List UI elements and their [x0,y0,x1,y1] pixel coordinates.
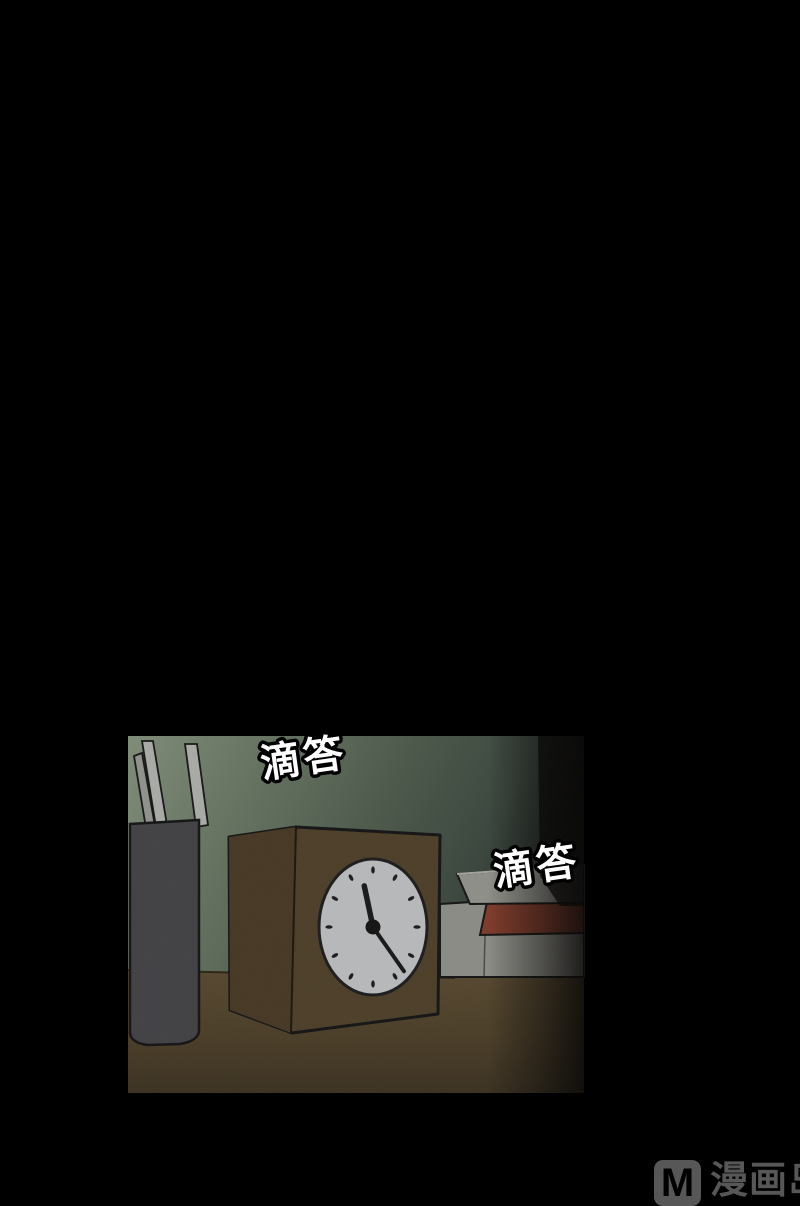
watermark: M 漫画岛 [654,1160,800,1206]
comic-panel: 滴答 滴答 [128,736,584,1093]
manhuadao-logo-icon: M [654,1160,701,1206]
comic-page: { "canvas": { "width": 800, "height": 12… [0,0,800,1200]
grain-overlay [128,736,584,1093]
watermark-brand-text: 漫画岛 [710,1160,800,1202]
